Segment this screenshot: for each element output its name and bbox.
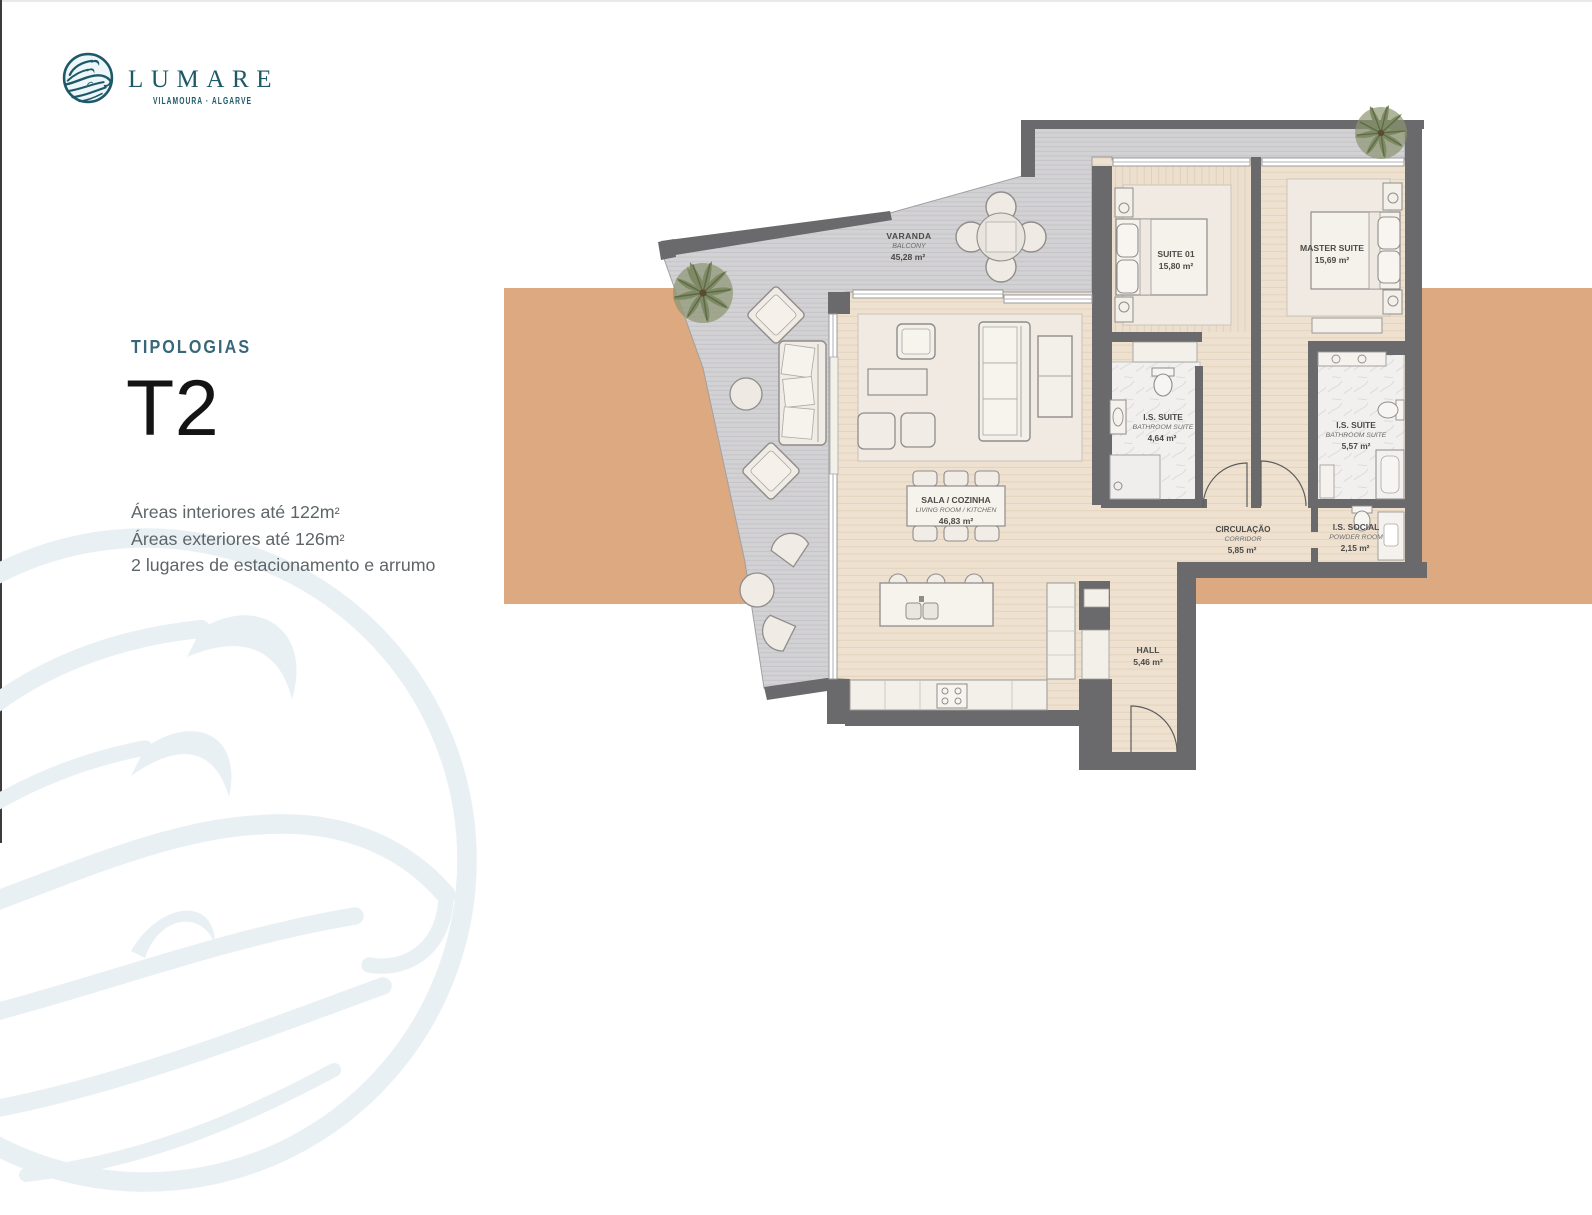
svg-text:45,28 m²: 45,28 m² [891,252,926,262]
svg-text:LIVING ROOM / KITCHEN: LIVING ROOM / KITCHEN [916,507,997,514]
svg-text:5,46 m²: 5,46 m² [1133,657,1163,667]
svg-text:2,15 m²: 2,15 m² [1341,543,1370,553]
svg-text:VARANDA: VARANDA [886,231,931,241]
svg-text:SUITE 01: SUITE 01 [1157,249,1194,259]
svg-text:BALCONY: BALCONY [892,243,927,250]
svg-text:I.S. SUITE: I.S. SUITE [1336,420,1376,430]
svg-text:I.S. SOCIAL: I.S. SOCIAL [1333,522,1380,532]
svg-text:5,85 m²: 5,85 m² [1228,545,1257,555]
svg-text:CORRIDOR: CORRIDOR [1224,536,1261,543]
svg-text:BATHROOM SUITE: BATHROOM SUITE [1326,432,1387,439]
svg-text:I.S. SUITE: I.S. SUITE [1143,412,1183,422]
svg-text:SALA / COZINHA: SALA / COZINHA [921,495,990,505]
svg-text:HALL: HALL [1137,645,1160,655]
svg-text:15,80 m²: 15,80 m² [1159,261,1194,271]
svg-text:POWDER ROOM: POWDER ROOM [1329,534,1383,541]
svg-text:46,83 m²: 46,83 m² [939,516,974,526]
svg-text:4,64 m²: 4,64 m² [1148,433,1177,443]
svg-text:5,57 m²: 5,57 m² [1342,441,1371,451]
svg-text:15,69 m²: 15,69 m² [1315,255,1350,265]
svg-text:CIRCULAÇÃO: CIRCULAÇÃO [1215,524,1271,534]
svg-text:MASTER SUITE: MASTER SUITE [1300,243,1364,253]
svg-text:BATHROOM SUITE: BATHROOM SUITE [1133,424,1194,431]
